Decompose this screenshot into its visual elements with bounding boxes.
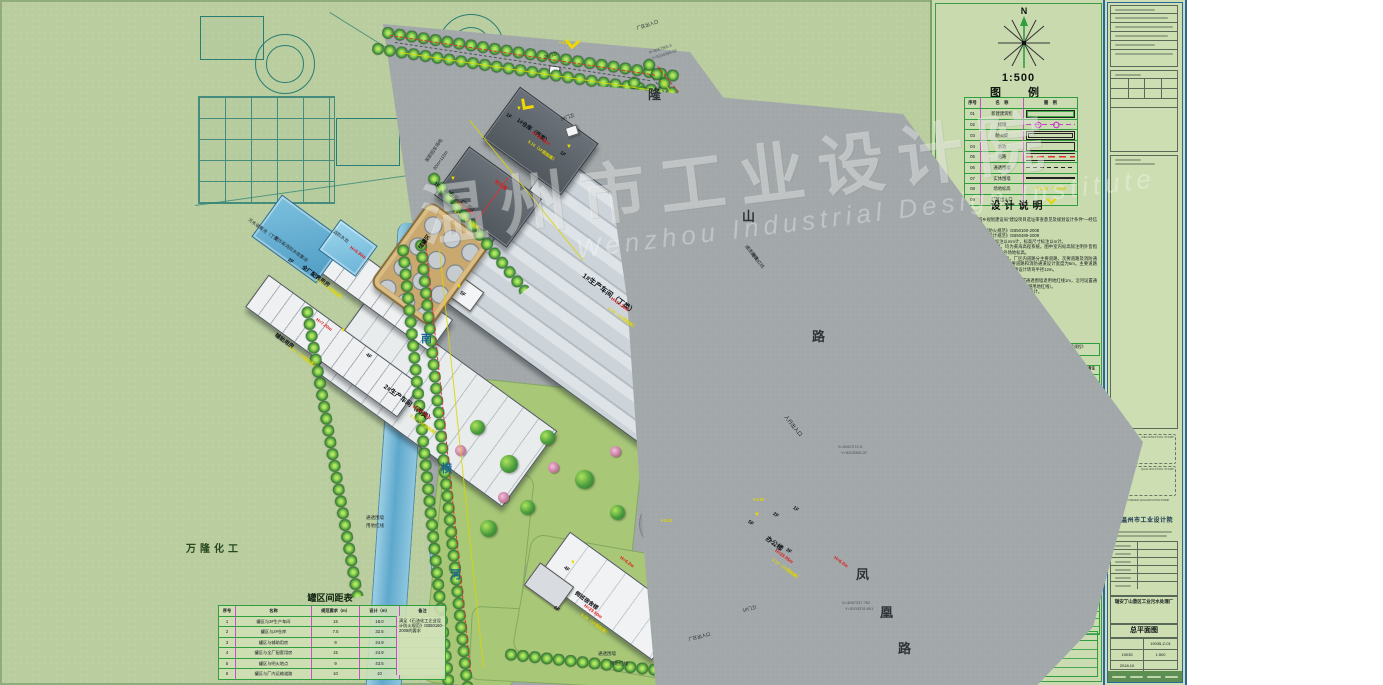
- site-plan-drawing: 瑞安丁山垦区工业污水处理厂万隆化工南横河隆山路凤凰路厂区出入口X=3067560…: [0, 0, 1383, 685]
- legend-no: 08: [965, 184, 980, 194]
- revisions-grid: [1111, 78, 1177, 88]
- plan-label: ▼4.90: [752, 497, 764, 502]
- cell-no: 5: [219, 659, 235, 669]
- plan-label: Y=5203376.691: [845, 606, 873, 611]
- contract-number: 19035: [1111, 650, 1144, 660]
- legend-name: 新建建筑物: [980, 109, 1024, 119]
- plan-label: ▼: [516, 106, 522, 112]
- stamp-label: REGISTRATION STAMP: [1142, 436, 1174, 439]
- table-merged-note: 满足《石油化工企业设计防火规范》GB50160-2008的要求: [396, 616, 445, 675]
- plan-label: 河: [450, 566, 461, 582]
- flower-bed: [548, 462, 559, 473]
- placeholder-text-bar: [1115, 44, 1155, 46]
- plan-label: 隆: [648, 84, 661, 103]
- plan-label: ▼: [754, 512, 760, 518]
- grid-cell: [1111, 89, 1128, 98]
- drawing-numbers-box: 19035-Z-01 19035 1:500 2018.10: [1110, 638, 1178, 670]
- legend-name: 实体围墙: [980, 174, 1024, 184]
- empty-row: [1111, 107, 1177, 116]
- legend-symbol-icon: ▼5.10 ▽4.90: [1026, 185, 1075, 193]
- tree: [480, 520, 497, 537]
- legend-symbol-icon: [1026, 153, 1075, 161]
- plan-label: ▼5.10: [660, 518, 672, 523]
- legend-name: 水池: [980, 142, 1024, 152]
- plan-label: ▼: [340, 328, 346, 334]
- placeholder-text-bar: [1115, 545, 1131, 547]
- col-header: 规范要求（m）: [311, 606, 359, 616]
- plan-label: X=3067274.5: [838, 444, 862, 449]
- table-header-row: 序号 名称 规范要求（m） 设计（m） 备注: [219, 606, 445, 616]
- placeholder-text-bar: [1114, 535, 1167, 537]
- cell-name: 罐区与辅助用房: [235, 638, 311, 648]
- drawing-number: 19035-Z-01: [1144, 639, 1177, 649]
- col-header: 设计（m）: [359, 606, 399, 616]
- tree: [610, 505, 625, 520]
- grid-cell: [1144, 79, 1161, 88]
- plan-label: 路: [812, 326, 825, 345]
- placeholder-text-bar: [1115, 17, 1168, 19]
- col-header: 名称: [235, 606, 311, 616]
- plan-label: 通透围墙: [366, 515, 384, 521]
- label-cell: [1144, 661, 1177, 671]
- cell-no: 6: [219, 669, 235, 679]
- grid-cell: [1111, 79, 1128, 88]
- placeholder-text-bar: [1115, 585, 1131, 587]
- plan-label: 路: [898, 638, 911, 657]
- flower-bed: [498, 492, 509, 503]
- placeholder-text-bar: [1147, 676, 1161, 678]
- tree: [520, 500, 535, 515]
- grid-cell: [1161, 79, 1178, 88]
- cell-design: 18.0: [359, 617, 399, 627]
- placeholder-text-bar: [1115, 74, 1141, 76]
- plan-label: 万隆化工: [186, 540, 242, 555]
- legend-symbol-icon: [1026, 131, 1075, 140]
- legend-row: 08 场地标高 ▼5.10 ▽4.90: [965, 183, 1077, 194]
- address-lines: [1110, 528, 1176, 540]
- placeholder-text-bar: [1115, 26, 1173, 28]
- plan-label: 用地红线: [610, 661, 628, 667]
- plan-label: ▼4.90: [558, 40, 570, 45]
- plan-label: X=3067237.762: [842, 600, 870, 605]
- legend-symbol-icon: [1026, 176, 1075, 180]
- legend-row: 02 储罐: [965, 119, 1077, 130]
- cell-no: 4: [219, 648, 235, 658]
- plan-label: ▼: [450, 176, 456, 182]
- grid-cell: [1144, 89, 1161, 98]
- cell-required: 7.5: [311, 627, 359, 637]
- legend-name: 场地标高: [980, 184, 1024, 194]
- placeholder-text-bar: [1115, 569, 1131, 571]
- legend-no: 06: [965, 163, 980, 173]
- cell-required: 9: [311, 659, 359, 669]
- cell-name: 罐区与厂内运输道路: [235, 669, 311, 679]
- plan-label: 用地红线: [366, 523, 384, 529]
- existing-clarifier: [255, 34, 315, 94]
- drawing-title-box: 总平面图: [1110, 624, 1178, 638]
- legend-row: 06 通透围墙: [965, 162, 1077, 173]
- placeholder-text-bar: [1115, 561, 1131, 563]
- cell-design: 10: [359, 669, 399, 679]
- col-header: 序号: [965, 98, 980, 108]
- compass-icon: [996, 16, 1052, 70]
- tank-spacing-table: 序号 名称 规范要求（m） 设计（m） 备注 1 罐区与2#生产车间 15 18…: [218, 605, 446, 680]
- cell-name: 罐区与2#生产车间: [235, 617, 311, 627]
- tree: [500, 455, 518, 473]
- bottom-band: [1108, 671, 1182, 682]
- plan-label: ▼: [426, 206, 432, 212]
- placeholder-text-bar: [1115, 9, 1155, 11]
- col-header: 备注: [399, 606, 445, 616]
- legend-symbol-icon: [1026, 110, 1075, 118]
- existing-plant-basin: [336, 118, 400, 166]
- placeholder-text-bar: [1115, 159, 1141, 161]
- legend-no: 03: [965, 131, 980, 141]
- cell-required: 15: [311, 648, 359, 658]
- tree: [540, 430, 555, 445]
- legend-no: 02: [965, 120, 980, 130]
- grid-cell: [1161, 89, 1178, 98]
- legend-header-row: 序号 名 称 图 例: [965, 98, 1077, 108]
- cell-design: 24.9: [359, 638, 399, 648]
- plan-label: 南: [421, 330, 432, 346]
- cell-design: 43.5: [359, 659, 399, 669]
- empty-row: [1111, 98, 1177, 107]
- project-name: 瑞安丁山垦区工业污水处理厂: [1111, 597, 1177, 607]
- north-compass: N: [994, 6, 1054, 72]
- tree: [575, 470, 594, 489]
- grid-cell: [1128, 89, 1145, 98]
- placeholder-text-bar: [1115, 577, 1131, 579]
- cell-required: 10: [311, 669, 359, 679]
- scale-label: 1:500: [932, 72, 1105, 84]
- drawing-title: 总平面图: [1111, 625, 1177, 637]
- plan-label: ▼: [566, 144, 572, 150]
- legend-table: 序号 名 称 图 例 01 新建建筑物 02 储罐 03 防火堤 04: [964, 97, 1078, 206]
- legend-no: 04: [965, 142, 980, 152]
- placeholder-text-bar: [1115, 53, 1173, 55]
- legend-no: 05: [965, 152, 980, 162]
- label-cell: [1111, 639, 1144, 649]
- description-box: [1110, 155, 1178, 429]
- existing-plant-basin: [200, 16, 264, 60]
- scale-value: 1:500: [1144, 650, 1177, 660]
- plan-label: ▼: [456, 284, 462, 290]
- north-label: N: [994, 6, 1054, 16]
- gate-arrow-icon: [521, 97, 534, 110]
- col-header: 序号: [219, 606, 235, 616]
- department-table: [1110, 5, 1178, 67]
- legend-symbol-icon: [1026, 166, 1075, 170]
- revisions-table: [1110, 70, 1178, 152]
- grid-cell: [1128, 79, 1145, 88]
- plan-label: 通透围墙: [598, 651, 616, 657]
- cell-name: 罐区与明火地点: [235, 659, 311, 669]
- date-value: 2018.10: [1111, 661, 1144, 671]
- plan-label: 山: [742, 206, 755, 225]
- title-block-strip: REGISTRATION STAMP QUALIFICATION STAMP P…: [1103, 0, 1187, 685]
- legend-name: 防火堤: [980, 131, 1024, 141]
- plan-label: 横: [441, 460, 452, 476]
- legend-no: 07: [965, 174, 980, 184]
- legend-symbol-icon: [1026, 142, 1075, 151]
- legend-row: 05 道路: [965, 151, 1077, 162]
- tank-spacing-table-title: 罐区间距表: [215, 591, 445, 604]
- legend-symbol-icon: [1026, 121, 1075, 129]
- placeholder-text-bar: [1165, 676, 1179, 678]
- placeholder-text-bar: [1114, 531, 1172, 533]
- col-header: 图 例: [1024, 98, 1077, 108]
- legend-row: 03 防火堤: [965, 129, 1077, 140]
- cell-name: 罐区与全厂配套用房: [235, 648, 311, 658]
- tree: [470, 420, 485, 435]
- cell-no: 2: [219, 627, 235, 637]
- legend-name: 储罐: [980, 120, 1024, 130]
- cell-design: 32.5: [359, 627, 399, 637]
- cell-name: 罐区与2#仓库: [235, 627, 311, 637]
- flower-bed: [610, 446, 621, 457]
- cell-no: 1: [219, 617, 235, 627]
- placeholder-text-bar: [1130, 676, 1144, 678]
- revisions-grid: [1111, 88, 1177, 98]
- plan-label: 凰: [880, 602, 893, 621]
- project-name-box: 瑞安丁山垦区工业污水处理厂: [1110, 596, 1178, 624]
- legend-row: 07 实体围墙: [965, 173, 1077, 184]
- placeholder-text-bar: [1115, 553, 1131, 555]
- legend-row: 04 水池: [965, 140, 1077, 151]
- plan-label: 凤: [856, 564, 869, 583]
- signature-table: [1110, 541, 1178, 596]
- cell-required: 9: [311, 638, 359, 648]
- cell-design: 24.9: [359, 648, 399, 658]
- legend-row: 01 新建建筑物: [965, 108, 1077, 119]
- legend-name: 道路: [980, 152, 1024, 162]
- plan-label: ▼: [570, 560, 576, 566]
- cell-no: 3: [219, 638, 235, 648]
- placeholder-text-bar: [1115, 35, 1168, 37]
- logo-org-name: 温州市工业设计院: [1121, 515, 1173, 524]
- placeholder-text-bar: [1112, 676, 1126, 678]
- cell-required: 15: [311, 617, 359, 627]
- plan-label: Y=5203356.37: [841, 450, 867, 455]
- legend-no: 01: [965, 109, 980, 119]
- stamp-label: QUALIFICATION STAMP: [1141, 468, 1174, 471]
- legend-name: 通透围墙: [980, 163, 1024, 173]
- col-header: 名 称: [980, 98, 1024, 108]
- placeholder-text-bar: [1115, 163, 1155, 165]
